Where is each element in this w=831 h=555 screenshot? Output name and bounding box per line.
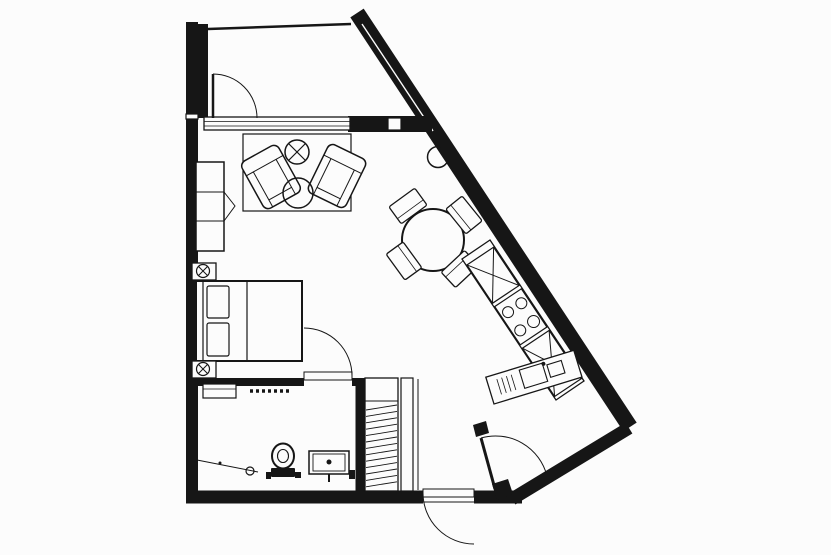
window-band bbox=[204, 117, 350, 130]
wall-bottom-right-diagonal bbox=[512, 428, 629, 499]
toilet-tank bbox=[271, 468, 295, 477]
bath-fitting-2 bbox=[349, 470, 355, 479]
stairs bbox=[365, 378, 398, 491]
bath-shelf bbox=[203, 384, 236, 398]
vestibule-door-leaf bbox=[481, 438, 495, 489]
wall-left-joint bbox=[186, 114, 198, 119]
bed bbox=[196, 281, 302, 361]
toilet bbox=[266, 444, 301, 479]
armchair-body bbox=[240, 143, 303, 211]
bath-fitting-1 bbox=[266, 473, 271, 479]
wardrobe bbox=[196, 162, 224, 251]
shower-dot bbox=[219, 462, 222, 465]
armchair-right bbox=[306, 143, 367, 210]
toilet-bowl bbox=[272, 444, 294, 469]
bathroom-door-swing-arc bbox=[304, 328, 352, 376]
wardrobe-door-mark bbox=[224, 192, 235, 221]
toilet-fitting-right bbox=[295, 472, 301, 478]
shower-slope-line bbox=[197, 460, 258, 472]
stairs-rail bbox=[401, 378, 413, 491]
balcony-door-swing-arc bbox=[213, 74, 257, 118]
entry-door-leaf bbox=[423, 489, 474, 497]
wall-vestibule-post bbox=[473, 421, 489, 437]
floorplan-drawing bbox=[0, 0, 831, 555]
wall-right-seam bbox=[362, 24, 433, 131]
armchair-body bbox=[306, 143, 367, 210]
bathroom-door-leaf bbox=[304, 372, 352, 380]
entry-door-swing-arc bbox=[423, 493, 474, 544]
armchair-left bbox=[240, 143, 303, 211]
window-square bbox=[388, 118, 401, 130]
floorplan bbox=[0, 0, 831, 555]
balcony-edge-line bbox=[208, 24, 351, 29]
vanity-faucet bbox=[327, 460, 332, 465]
